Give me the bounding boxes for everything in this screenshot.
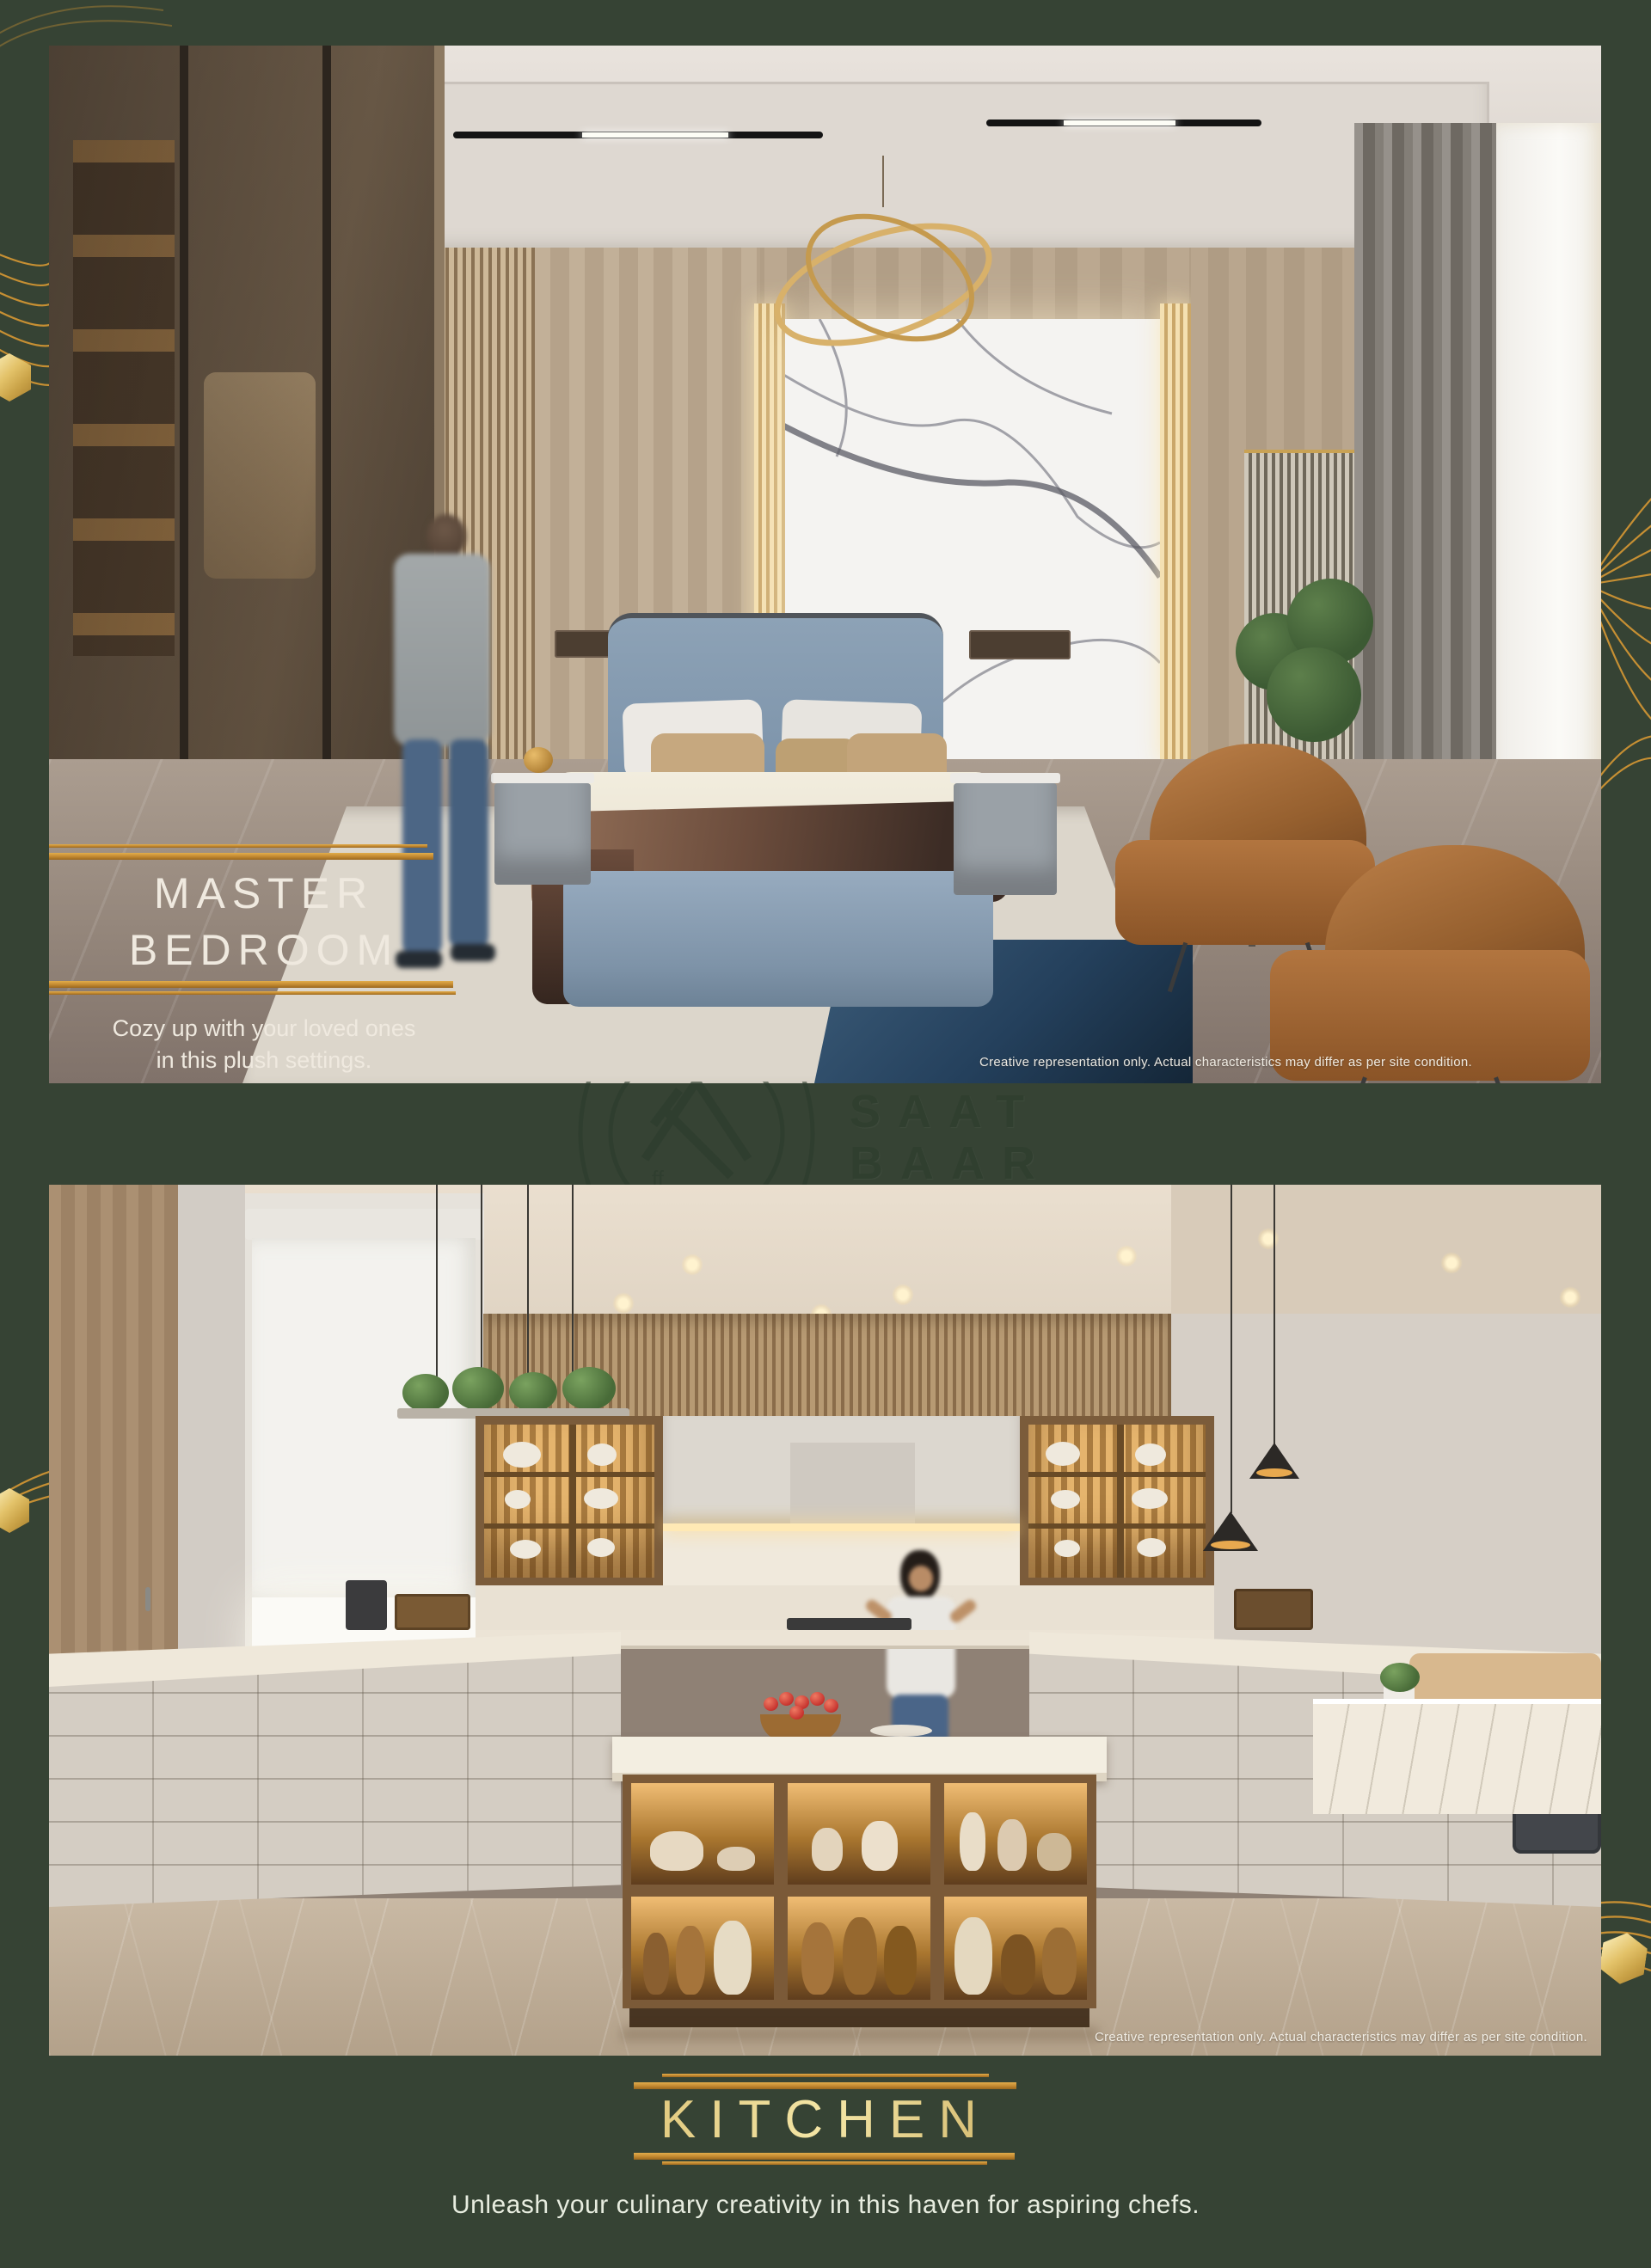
marble-bar-counter — [1313, 1699, 1601, 1814]
ceiling-spotlight — [681, 1254, 703, 1276]
pendant-rod — [1274, 1185, 1275, 1444]
bedroom-title-block: MASTER BEDROOM Cozy up with your loved o… — [49, 844, 496, 1083]
bedroom-disclaimer: Creative representation only. Actual cha… — [979, 1055, 1472, 1070]
bed-base — [563, 871, 993, 1007]
decor-sculpture — [524, 747, 553, 773]
bedroom-render-image: MASTER BEDROOM Cozy up with your loved o… — [49, 46, 1601, 1083]
backlit-slat-column — [1160, 303, 1191, 763]
bedroom-title: MASTER BEDROOM — [49, 865, 479, 978]
bedroom-caption: Cozy up with your loved ones in this plu… — [49, 1013, 479, 1076]
gold-ring-chandelier — [754, 156, 1012, 383]
counter-items-jars — [1234, 1589, 1313, 1630]
ceiling-spotlight — [1257, 1228, 1280, 1250]
gold-rule — [634, 2082, 1016, 2089]
watermark-text-line2: BAAR — [850, 1137, 1053, 1185]
ceiling-spotlight — [1559, 1286, 1581, 1309]
gold-rule — [662, 2161, 987, 2165]
gas-cooktop — [787, 1618, 911, 1630]
gold-rule — [49, 981, 453, 988]
planter-greens — [1380, 1663, 1420, 1692]
nightstand-right — [954, 783, 1057, 895]
watermark-band: ff SAAT BAAR — [0, 1082, 1651, 1185]
kitchen-disclaimer: Creative representation only. Actual cha… — [1095, 2030, 1587, 2044]
person-face — [909, 1566, 933, 1591]
counter-items-spice-rack — [395, 1594, 470, 1630]
pendant-rod — [1231, 1185, 1232, 1513]
brochure-page: MASTER BEDROOM Cozy up with your loved o… — [0, 0, 1651, 2268]
island-floor-reflection — [621, 2027, 1098, 2041]
gold-rule — [49, 991, 456, 995]
svg-text:ff: ff — [652, 1166, 665, 1185]
potted-plant — [1227, 579, 1382, 768]
door-handle — [145, 1587, 150, 1611]
bedroom-caption-line2: in this plush settings. — [157, 1047, 372, 1073]
ceiling-track-light — [453, 132, 823, 138]
wall-switch-right — [969, 630, 1071, 659]
glass-display-cabinet-left — [476, 1416, 663, 1586]
range-hood — [790, 1443, 915, 1532]
ceiling-spotlight — [612, 1292, 635, 1315]
kitchen-render-image: Creative representation only. Actual cha… — [49, 1185, 1601, 2056]
kitchen-title: KITCHEN — [0, 2089, 1651, 2150]
person-head — [427, 514, 466, 559]
leather-armchair-near — [1270, 845, 1601, 1083]
fruit-plate — [870, 1725, 932, 1737]
gold-rule — [49, 844, 427, 848]
saat-baar-logo-watermark: ff — [550, 1082, 834, 1185]
ceiling-track-light — [986, 120, 1261, 126]
ceiling-spotlight — [892, 1284, 914, 1306]
island-body — [623, 1775, 1096, 2008]
counter-items-coffee-machine — [346, 1580, 387, 1630]
gold-rule — [49, 853, 433, 860]
ceiling-spotlight — [1115, 1245, 1138, 1267]
kitchen-caption: Unleash your culinary creativity in this… — [0, 2191, 1651, 2220]
cabinet-run-left — [49, 1632, 621, 1907]
glass-display-cabinet-right — [1020, 1416, 1214, 1586]
bedroom-title-line2: BEDROOM — [129, 926, 399, 974]
island-plinth — [629, 2008, 1089, 2027]
watermark-text-line1: SAAT — [850, 1085, 1041, 1138]
bedroom-caption-line1: Cozy up with your loved ones — [113, 1015, 416, 1041]
ceiling-spotlight — [1440, 1252, 1463, 1274]
kitchen-island — [612, 1735, 1107, 2038]
gold-rule — [662, 2074, 989, 2077]
bedroom-title-line1: MASTER — [154, 869, 374, 917]
roller-blind-box — [245, 1209, 484, 1240]
gold-rule — [634, 2153, 1015, 2160]
person-shirt — [394, 554, 490, 746]
